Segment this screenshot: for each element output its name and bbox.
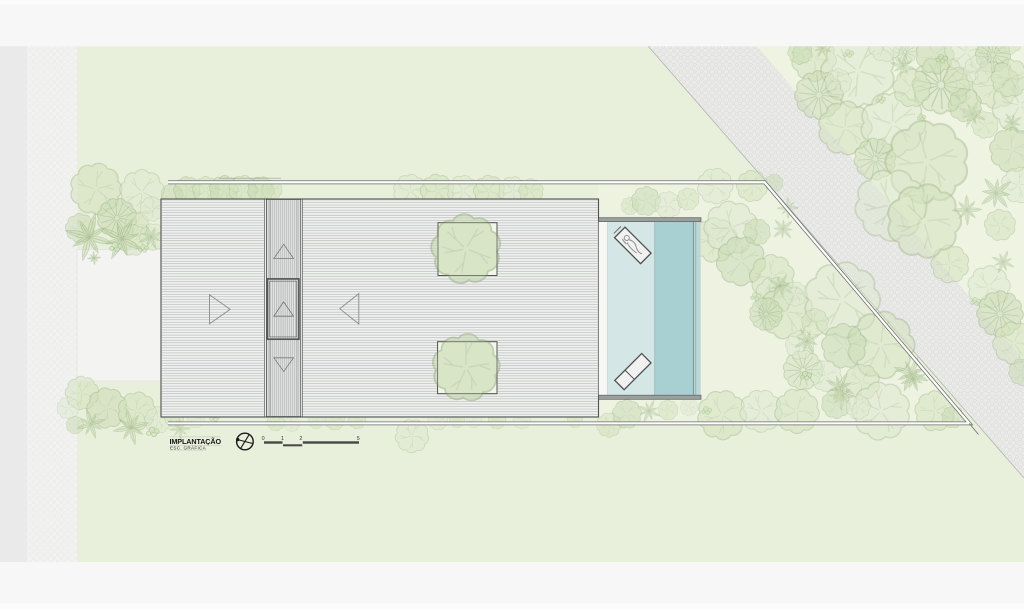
svg-text:5: 5 <box>357 436 360 442</box>
svg-text:1: 1 <box>281 436 284 442</box>
svg-text:2: 2 <box>299 436 302 442</box>
svg-text:ESC. GRÁFICA: ESC. GRÁFICA <box>170 445 207 451</box>
svg-text:0: 0 <box>262 436 265 442</box>
